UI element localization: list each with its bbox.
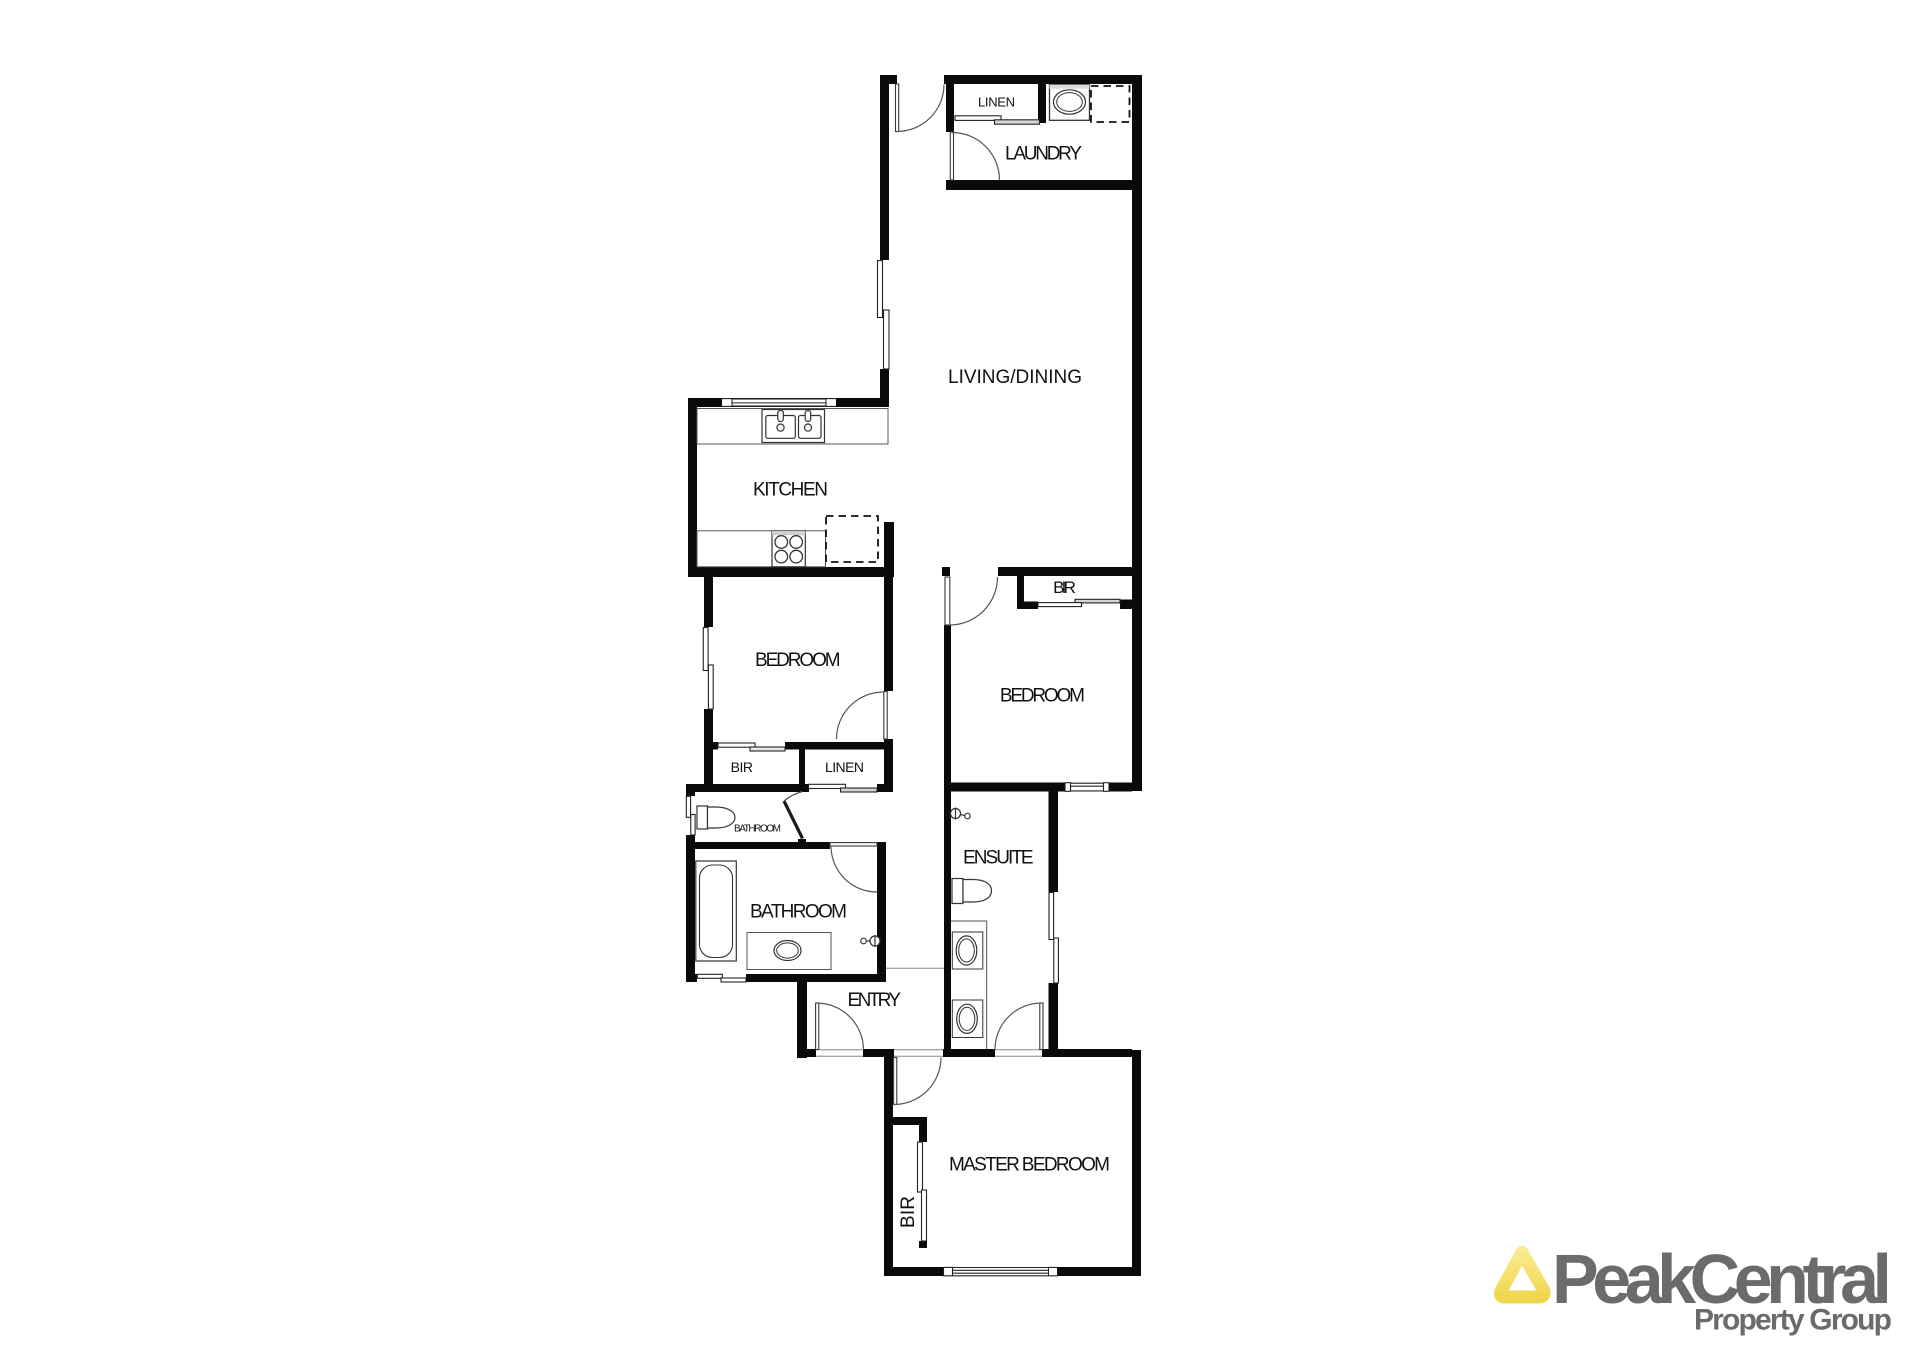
svg-text:LAUNDRY: LAUNDRY bbox=[1005, 143, 1082, 164]
svg-text:LIVING/DINING: LIVING/DINING bbox=[948, 367, 1082, 388]
svg-text:LINEN: LINEN bbox=[978, 94, 1015, 109]
svg-text:BIR: BIR bbox=[898, 1196, 919, 1228]
svg-text:BEDROOM: BEDROOM bbox=[755, 650, 841, 671]
svg-text:ENTRY: ENTRY bbox=[848, 990, 902, 1011]
svg-text:BATHROOM: BATHROOM bbox=[750, 902, 847, 923]
svg-text:KITCHEN: KITCHEN bbox=[753, 479, 828, 500]
svg-text:BEDROOM: BEDROOM bbox=[1000, 685, 1085, 706]
svg-text:LINEN: LINEN bbox=[825, 759, 864, 775]
svg-text:BATHROOM: BATHROOM bbox=[734, 823, 781, 834]
svg-text:BIR: BIR bbox=[1053, 578, 1076, 597]
svg-text:MASTER BEDROOM: MASTER BEDROOM bbox=[949, 1154, 1110, 1175]
svg-text:BIR: BIR bbox=[731, 759, 753, 775]
svg-text:ENSUITE: ENSUITE bbox=[963, 848, 1034, 869]
svg-text:Property Group: Property Group bbox=[1694, 1304, 1892, 1337]
